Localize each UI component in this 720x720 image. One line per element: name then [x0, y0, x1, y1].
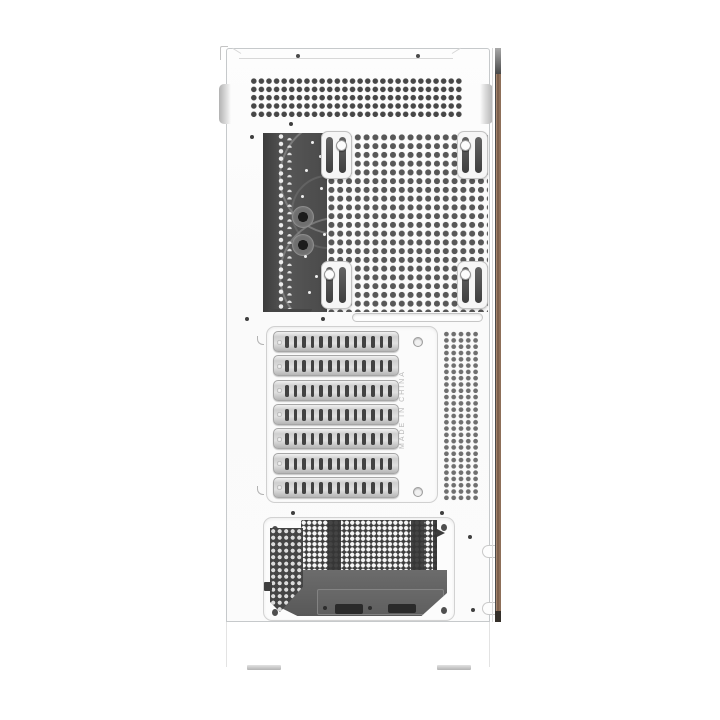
fan-highlight-dot [308, 291, 311, 294]
front-trim-edge [492, 48, 501, 622]
cover-vent-slot [380, 360, 384, 372]
expansion-slot-cover [273, 453, 399, 474]
trim-gap-line [492, 48, 494, 622]
screw [250, 135, 254, 139]
cover-vent-slot [294, 336, 298, 348]
trim-bottom-cap [495, 611, 501, 622]
cover-vent-slot [319, 458, 323, 470]
cover-vent-slot [371, 360, 375, 372]
fan-hub [292, 234, 314, 256]
cover-vent-slot [302, 385, 306, 397]
cover-vent-slot [380, 385, 384, 397]
psu-bracket-screw [323, 606, 327, 610]
psu-frame-bar [411, 520, 424, 572]
cover-vent-slot [362, 336, 366, 348]
cover-vent-slot [354, 360, 358, 372]
side-perforation-column [443, 331, 480, 501]
panel-screw [413, 337, 423, 347]
psu-frame-bar [328, 520, 341, 572]
cover-screw-hole [277, 485, 282, 490]
screw [289, 122, 293, 126]
psu-mount-hole [441, 607, 447, 614]
psu-frame-edge [433, 520, 437, 572]
cover-vent-slot [328, 458, 332, 470]
fan-highlight-dot [305, 169, 308, 172]
cover-vent-slot [311, 458, 315, 470]
cover-vent-slot [388, 360, 392, 372]
cover-vent-slot [285, 360, 289, 372]
cover-vent-slot [302, 409, 306, 421]
expansion-slot-cover [273, 428, 399, 449]
cable-slot [352, 313, 483, 322]
cover-vent-slot [388, 433, 392, 445]
fan-rail-bracket [457, 131, 488, 179]
cover-vent-slot [380, 409, 384, 421]
rail-screw [324, 269, 335, 280]
cover-vent-slot [337, 433, 341, 445]
screw [291, 511, 295, 515]
cover-vent-slot [371, 409, 375, 421]
cover-vent-slot [319, 482, 323, 494]
made-in-label: MADE IN CHINA [399, 375, 406, 449]
psu-bracket-slot [388, 604, 416, 613]
cover-vent-slot [337, 336, 341, 348]
screw [245, 317, 249, 321]
side-tab [219, 84, 231, 124]
psu-mount-hole [441, 524, 447, 531]
front-fans-viewport [263, 133, 327, 312]
cover-vent-slot [362, 433, 366, 445]
cover-vent-slot [354, 433, 358, 445]
expansion-slot-cover [273, 380, 399, 401]
rail-slot [475, 267, 482, 303]
fan-rail-bracket [321, 261, 352, 309]
fan-rail-bracket [321, 131, 352, 179]
cover-vent-slot [328, 336, 332, 348]
cover-vent-slot [380, 482, 384, 494]
fan-hub [292, 206, 314, 228]
cover-vent-slot [294, 482, 298, 494]
cover-screw-hole [277, 364, 282, 369]
cover-screw-hole [277, 412, 282, 417]
top-edge-step [220, 46, 228, 60]
fan-highlight-dot [323, 233, 326, 236]
cover-vent-slot [388, 458, 392, 470]
cover-vent-slot [311, 482, 315, 494]
cover-vent-slot [380, 433, 384, 445]
trim-bar [495, 48, 501, 622]
cover-screw-hole [277, 340, 282, 345]
fan-highlight-dot [311, 141, 314, 144]
cover-vent-slot [345, 336, 349, 348]
cover-vent-slot [388, 409, 392, 421]
cover-vent-slot [285, 385, 289, 397]
cover-vent-slot [294, 433, 298, 445]
cover-vent-slot [354, 458, 358, 470]
cover-screw-hole [277, 461, 282, 466]
cover-vent-slot [294, 360, 298, 372]
cover-vent-slot [285, 458, 289, 470]
cover-vent-slot [354, 482, 358, 494]
cover-screw-hole [277, 437, 282, 442]
cover-vent-slot [362, 458, 366, 470]
rail-screw [460, 140, 471, 151]
fan-rail-bracket [457, 261, 488, 309]
cover-vent-slot [354, 409, 358, 421]
expansion-slot-cover [273, 355, 399, 376]
cover-vent-slot [337, 360, 341, 372]
cover-vent-slot [362, 409, 366, 421]
fan-highlight-dot [315, 275, 318, 278]
screw [468, 535, 472, 539]
cover-vent-slot [345, 458, 349, 470]
cover-vent-slot [302, 433, 306, 445]
cover-vent-slot [362, 360, 366, 372]
psu-tab [264, 582, 272, 591]
cover-vent-slot [337, 385, 341, 397]
cover-vent-slot [371, 482, 375, 494]
cover-vent-slot [362, 385, 366, 397]
cover-vent-slot [311, 360, 315, 372]
psu-mount-hole [272, 609, 278, 616]
cover-vent-slot [302, 360, 306, 372]
cover-vent-slot [328, 433, 332, 445]
rail-screw [336, 140, 347, 151]
cover-vent-slot [311, 433, 315, 445]
cover-vent-slot [319, 360, 323, 372]
cover-vent-slot [345, 360, 349, 372]
cover-vent-slot [302, 482, 306, 494]
bottom-skirt [226, 622, 490, 667]
cover-vent-slot [328, 385, 332, 397]
expansion-slot-cover [273, 477, 399, 498]
cover-vent-slot [311, 385, 315, 397]
cover-vent-slot [285, 433, 289, 445]
cover-vent-slot [319, 385, 323, 397]
cover-vent-slot [380, 336, 384, 348]
cover-vent-slot [371, 385, 375, 397]
cover-vent-slot [345, 409, 349, 421]
cover-vent-slot [337, 482, 341, 494]
cover-vent-slot [388, 336, 392, 348]
psu-vent-grille [301, 520, 437, 572]
cover-screw-hole [277, 388, 282, 393]
cover-vent-slot [285, 409, 289, 421]
cover-vent-slot [285, 482, 289, 494]
cover-vent-slot [388, 385, 392, 397]
fan-highlight-dot [301, 195, 304, 198]
cover-vent-slot [354, 385, 358, 397]
expansion-slot-panel [266, 326, 438, 503]
cover-vent-slot [319, 336, 323, 348]
cover-vent-slot [337, 458, 341, 470]
cover-vent-slot [302, 458, 306, 470]
rail-screw [460, 269, 471, 280]
cover-vent-slot [371, 433, 375, 445]
cover-vent-slot [328, 360, 332, 372]
cover-vent-slot [311, 409, 315, 421]
case-foot [247, 665, 281, 670]
fan-highlight-dot [304, 255, 307, 258]
screw [321, 317, 325, 321]
screw [471, 608, 475, 612]
cover-vent-slot [302, 336, 306, 348]
panel-screw [413, 487, 423, 497]
cover-vent-slot [319, 409, 323, 421]
fan-highlight-dot [320, 187, 323, 190]
cover-vent-slot [345, 385, 349, 397]
cover-vent-slot [328, 409, 332, 421]
expansion-slot-cover [273, 331, 399, 352]
cover-vent-slot [294, 409, 298, 421]
rail-slot [475, 137, 482, 173]
cover-vent-slot [328, 482, 332, 494]
cover-vent-slot [345, 433, 349, 445]
cover-vent-slot [311, 336, 315, 348]
cover-vent-slot [354, 336, 358, 348]
rail-slot [339, 267, 346, 303]
trim-top-cap [495, 48, 501, 74]
cover-vent-slot [319, 433, 323, 445]
cover-vent-slot [380, 458, 384, 470]
expansion-slot-covers [267, 327, 437, 502]
cover-vent-slot [371, 458, 375, 470]
case-foot [437, 665, 471, 670]
expansion-slot-cover [273, 404, 399, 425]
cover-vent-slot [294, 385, 298, 397]
cover-vent-slot [362, 482, 366, 494]
cover-vent-slot [345, 482, 349, 494]
rail-slot [326, 137, 333, 173]
cover-vent-slot [371, 336, 375, 348]
screw [440, 511, 444, 515]
cover-vent-slot [337, 409, 341, 421]
rivet [416, 54, 420, 58]
top-seam-line [239, 58, 453, 59]
fan-frame-holes [277, 133, 295, 312]
pc-case-photo: MADE IN CHINA [0, 0, 720, 720]
top-vent-perforation [250, 77, 463, 119]
psu-bracket-slot [335, 604, 363, 614]
rivet [296, 54, 300, 58]
cover-vent-slot [294, 458, 298, 470]
psu-bracket-screw [368, 606, 372, 610]
cover-vent-slot [388, 482, 392, 494]
fan-frame-edge [268, 309, 312, 312]
cover-vent-slot [285, 336, 289, 348]
